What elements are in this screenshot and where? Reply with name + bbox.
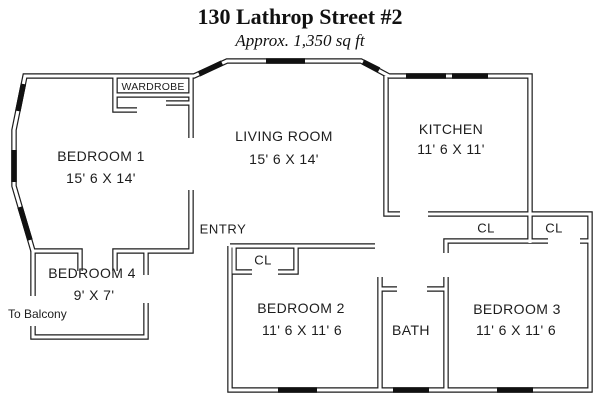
kitchen-label: KITCHEN — [419, 121, 483, 137]
kitchen-dimensions: 11' 6 X 11' — [417, 141, 485, 157]
bedroom4-label: BEDROOM 4 — [48, 265, 136, 281]
bedroom1-label: BEDROOM 1 — [57, 148, 145, 164]
bedroom1-dimensions: 15' 6 X 14' — [66, 170, 136, 186]
wardrobe-label: WARDROBE — [121, 81, 184, 93]
bedroom3-label: BEDROOM 3 — [473, 301, 561, 317]
walls-cavity — [14, 61, 590, 390]
walls-outline — [14, 61, 590, 390]
bedroom4-dimensions: 9' X 7' — [74, 287, 115, 303]
to-balcony-note: To Balcony — [8, 307, 67, 321]
floor-plan-drawing — [0, 0, 600, 400]
floor-plan: 130 Lathrop Street #2 Approx. 1,350 sq f… — [0, 0, 600, 400]
entry-label: ENTRY — [200, 222, 247, 237]
bedroom2-dimensions: 11' 6 X 11' 6 — [262, 322, 342, 338]
living-room-dimensions: 15' 6 X 14' — [249, 151, 319, 167]
window-markers — [14, 61, 533, 390]
living-room-label: LIVING ROOM — [235, 128, 333, 144]
hall-closet-label: CL — [477, 221, 494, 236]
bedroom2-closet-label: CL — [254, 253, 271, 268]
bedroom2-label: BEDROOM 2 — [257, 300, 345, 316]
bedroom3-dimensions: 11' 6 X 11' 6 — [476, 322, 556, 338]
bath-label: BATH — [392, 322, 430, 338]
bedroom3-closet-label: CL — [545, 221, 562, 236]
